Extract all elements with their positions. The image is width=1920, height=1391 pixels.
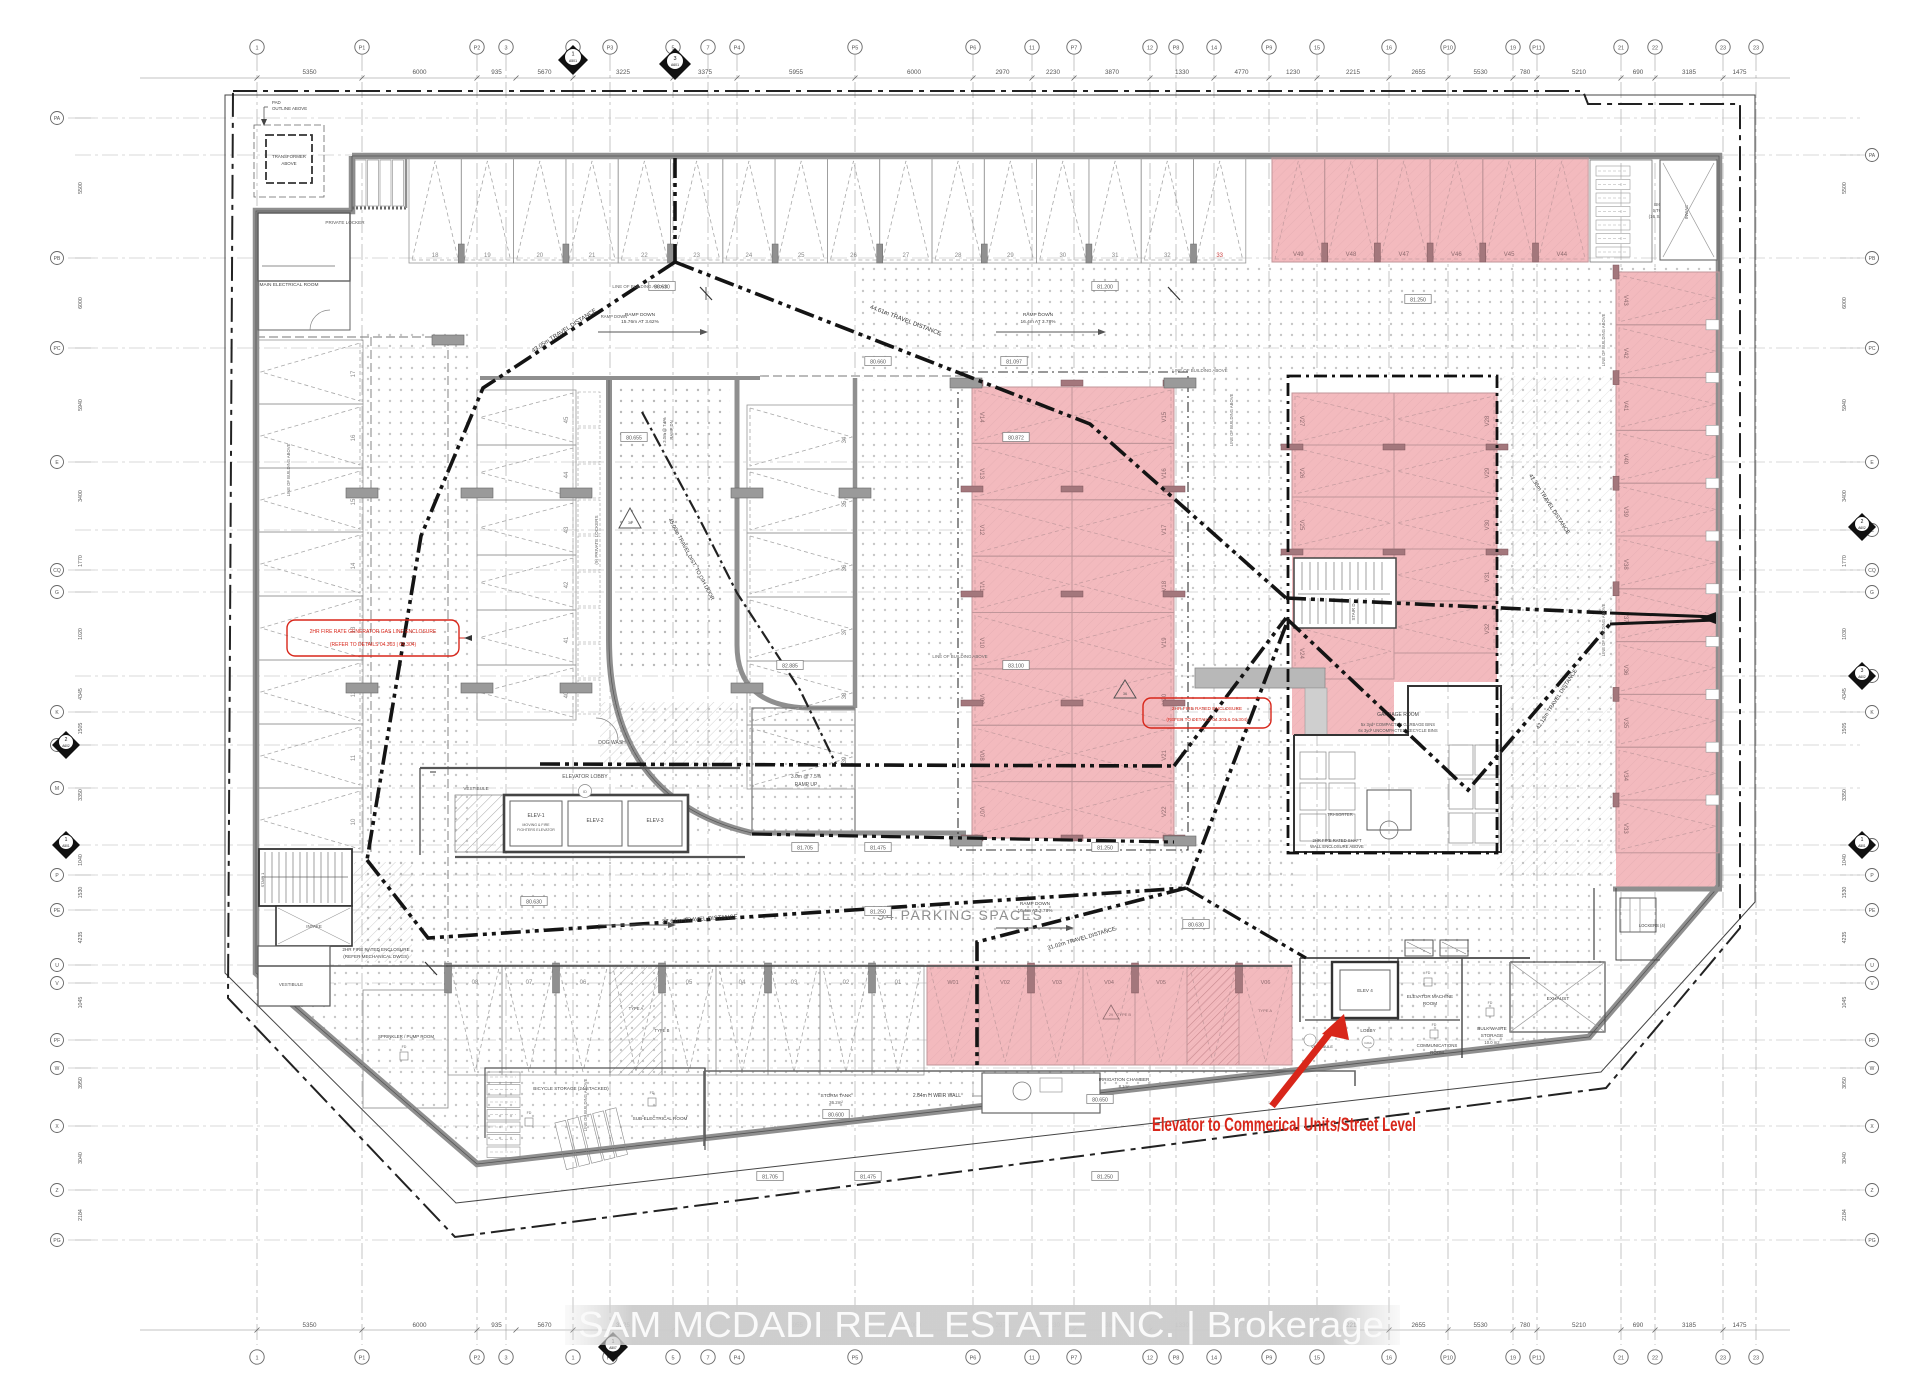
svg-text:P11: P11 [1532,46,1541,52]
svg-text:1505: 1505 [78,723,84,735]
svg-text:V33: V33 [1622,823,1628,834]
svg-text:V26: V26 [1298,468,1304,479]
svg-text:3040: 3040 [78,1152,84,1164]
svg-text:FD: FD [1488,1001,1493,1005]
svg-text:81.475: 81.475 [870,846,886,852]
svg-text:690: 690 [1633,1322,1644,1329]
svg-text:V03: V03 [1052,980,1062,986]
svg-text:21: 21 [589,253,596,259]
svg-text:V28: V28 [1485,415,1491,426]
svg-text:3400: 3400 [78,490,84,502]
svg-text:PF: PF [54,1038,60,1044]
svg-text:81.250: 81.250 [1097,1175,1113,1181]
svg-text:80.630: 80.630 [526,900,542,906]
svg-text:V16: V16 [1162,468,1168,479]
svg-text:TYPE B: TYPE B [655,1028,670,1033]
svg-text:15: 15 [351,498,357,505]
svg-text:22: 22 [1652,1356,1658,1362]
svg-text:81.705: 81.705 [762,1175,778,1181]
svg-text:A602: A602 [1858,675,1866,679]
svg-text:FD: FD [1426,971,1431,975]
svg-text:2HR FIRE RATED ENCLOSURE: 2HR FIRE RATED ENCLOSURE [1172,706,1242,712]
svg-text:3375: 3375 [698,69,713,76]
svg-text:PA: PA [54,116,61,122]
svg-text:33: 33 [1216,253,1223,259]
svg-text:7: 7 [706,46,709,52]
svg-text:43: 43 [564,526,570,533]
svg-text:36: 36 [1123,692,1127,696]
svg-text:19: 19 [1510,1356,1516,1362]
svg-text:PE: PE [1869,908,1876,914]
svg-text:28: 28 [955,253,962,259]
svg-text:08: 08 [472,980,479,986]
svg-text:ELEVATOR LOBBY: ELEVATOR LOBBY [562,774,608,780]
svg-text:3: 3 [504,46,507,52]
svg-text:LINE OF BUILDING ABOVE: LINE OF BUILDING ABOVE [932,654,987,659]
svg-text:A501: A501 [62,844,70,848]
svg-text:5940: 5940 [1842,399,1848,411]
svg-text:1: 1 [255,1356,258,1362]
svg-text:10.0 m2: 10.0 m2 [1484,1040,1500,1045]
svg-text:ELEV-3: ELEV-3 [647,818,664,824]
svg-text:LINE OF BUILDING ABOVE: LINE OF BUILDING ABOVE [286,443,291,496]
svg-text:3.0m @ 7.5%: 3.0m @ 7.5% [791,774,822,780]
svg-text:P8: P8 [1173,1356,1180,1362]
svg-text:V08: V08 [978,750,984,761]
svg-text:1: 1 [571,52,574,58]
svg-text:V43: V43 [1622,295,1628,306]
svg-text:2HR FIRE RATED SHAFT: 2HR FIRE RATED SHAFT [1312,838,1361,843]
svg-text:V36: V36 [1622,665,1628,676]
svg-text:ABOVE: ABOVE [281,161,296,166]
svg-text:05: 05 [686,980,693,986]
svg-text:V17: V17 [1162,524,1168,535]
svg-text:935: 935 [491,1322,502,1329]
svg-text:V32: V32 [1485,623,1491,634]
svg-text:RAMP DOWN: RAMP DOWN [625,312,656,318]
svg-text:80.600: 80.600 [828,1113,844,1119]
svg-text:6000: 6000 [412,1322,427,1329]
svg-text:2184: 2184 [1842,1209,1848,1221]
svg-text:1: 1 [571,1356,574,1362]
svg-text:RAMP DOWN: RAMP DOWN [601,314,627,319]
svg-text:1505: 1505 [1842,723,1848,735]
svg-text:3400: 3400 [1842,490,1848,502]
svg-text:V18: V18 [1162,580,1168,591]
svg-text:37: 37 [842,628,848,635]
svg-text:A501: A501 [569,59,577,63]
svg-text:23: 23 [1753,46,1759,52]
svg-text:U: U [55,963,59,969]
svg-text:4235: 4235 [1842,932,1848,944]
svg-text:8.1m²: 8.1m² [1119,1084,1130,1089]
svg-text:V27: V27 [1298,416,1304,427]
svg-text:W01: W01 [947,980,958,986]
svg-text:6000: 6000 [907,69,922,76]
svg-text:04: 04 [739,980,746,986]
svg-text:81.475: 81.475 [860,1175,876,1181]
svg-text:C2bA: C2bA [1364,1041,1372,1045]
svg-text:MOVING & FIRE: MOVING & FIRE [522,823,550,827]
svg-text:19: 19 [484,253,491,259]
svg-text:5530: 5530 [1473,1322,1488,1329]
svg-text:PG: PG [1868,1238,1875,1244]
svg-text:P6: P6 [970,46,977,52]
svg-text:V12: V12 [978,525,984,536]
svg-text:V25: V25 [1298,520,1304,531]
svg-text:1475: 1475 [1732,69,1747,76]
svg-text:A507: A507 [609,1346,617,1350]
svg-text:P1: P1 [359,46,366,52]
svg-text:06: 06 [580,980,587,986]
svg-text:3350: 3350 [78,789,84,801]
svg-text:ID: ID [583,790,587,794]
svg-text:LINE OF BUILDING ABOVE: LINE OF BUILDING ABOVE [1601,313,1606,366]
svg-text:23: 23 [1720,1356,1726,1362]
svg-text:14: 14 [351,562,357,569]
svg-text:P9: P9 [1266,1356,1273,1362]
svg-text:1: 1 [1861,837,1864,843]
svg-text:3185: 3185 [1682,69,1697,76]
svg-text:31: 31 [1112,253,1119,259]
svg-text:W: W [55,1066,60,1072]
svg-text:1040: 1040 [1842,854,1848,866]
svg-text:V24: V24 [1298,648,1304,659]
svg-text:V38: V38 [1622,559,1628,570]
svg-text:EXHAUST: EXHAUST [1547,996,1570,1002]
svg-text:1: 1 [255,46,258,52]
svg-text:V42: V42 [1622,348,1628,359]
svg-text:5670: 5670 [537,69,552,76]
svg-text:80.872: 80.872 [1008,436,1024,442]
svg-text:34: 34 [842,436,848,443]
svg-text:03: 03 [791,980,798,986]
svg-text:FD: FD [402,1045,407,1049]
svg-text:1040: 1040 [78,854,84,866]
svg-text:V19: V19 [1162,637,1168,648]
svg-text:21: 21 [1618,46,1624,52]
svg-text:3: 3 [673,56,676,62]
svg-text:1230: 1230 [1286,69,1301,76]
svg-text:V35: V35 [1622,717,1628,728]
svg-text:4345: 4345 [78,688,84,700]
svg-text:32: 32 [1164,253,1171,259]
svg-text:19: 19 [1510,46,1516,52]
svg-text:80.655: 80.655 [626,436,642,442]
svg-text:29: 29 [1109,1013,1113,1017]
svg-text:1: 1 [65,837,68,843]
svg-text:(9) PRIVATE LOCKERS: (9) PRIVATE LOCKERS [594,515,599,564]
svg-text:V46: V46 [1451,252,1462,258]
svg-text:P8: P8 [1173,46,1180,52]
svg-text:V21: V21 [1162,749,1168,760]
svg-text:LINE OF BUILDING ABOVE: LINE OF BUILDING ABOVE [612,284,667,289]
svg-text:690: 690 [1633,69,1644,76]
svg-text:5530: 5530 [1473,69,1488,76]
svg-text:V06: V06 [1261,980,1271,986]
svg-text:5350: 5350 [302,1322,317,1329]
svg-text:94 PARKING SPACES: 94 PARKING SPACES [877,907,1044,923]
svg-text:A501: A501 [1858,844,1866,848]
svg-text:1530: 1530 [78,887,84,899]
svg-text:7: 7 [706,1356,709,1362]
svg-text:83.100: 83.100 [1008,664,1024,670]
svg-text:ELEV-1: ELEV-1 [528,813,545,819]
svg-text:PAD: PAD [272,100,281,105]
svg-text:STAIR D: STAIR D [1351,604,1356,621]
svg-text:36.2m²: 36.2m² [829,1100,843,1105]
svg-text:P6: P6 [970,1356,977,1362]
svg-text:5955: 5955 [789,69,804,76]
svg-text:10: 10 [351,818,357,825]
svg-text:2: 2 [1861,519,1864,525]
svg-text:15: 15 [1314,1356,1320,1362]
svg-text:5350: 5350 [302,69,317,76]
svg-text:15: 15 [1314,46,1320,52]
svg-text:LOCKERS (4): LOCKERS (4) [1639,923,1666,928]
svg-text:P9: P9 [1266,46,1273,52]
svg-text:V40: V40 [1622,453,1628,464]
svg-text:ELEV 4: ELEV 4 [1357,988,1373,993]
svg-text:42: 42 [564,581,570,588]
svg-text:V02: V02 [1000,980,1010,986]
svg-text:STORAGE: STORAGE [1481,1033,1503,1038]
svg-text:3950: 3950 [78,1077,84,1089]
svg-text:TYPE A: TYPE A [1258,1008,1272,1013]
svg-text:V13: V13 [978,468,984,479]
svg-text:25: 25 [798,253,805,259]
svg-text:U: U [1870,963,1874,969]
svg-text:80.630: 80.630 [1188,923,1204,929]
svg-text:3350: 3350 [1842,789,1848,801]
svg-text:(REFER MECHANICAL DWGS): (REFER MECHANICAL DWGS) [343,954,409,959]
svg-text:11: 11 [351,754,357,761]
svg-text:P1: P1 [359,1356,366,1362]
svg-text:V45: V45 [1504,252,1515,258]
svg-text:MAIN ELECTRICAL ROOM: MAIN ELECTRICAL ROOM [260,282,319,288]
svg-text:P5: P5 [852,46,859,52]
svg-text:16: 16 [1386,46,1392,52]
svg-text:2HR FIRE RATED ENCLOSURE: 2HR FIRE RATED ENCLOSURE [342,947,409,952]
svg-text:P10: P10 [1443,1356,1453,1362]
svg-text:2655: 2655 [1411,1322,1426,1329]
svg-text:45: 45 [564,416,570,423]
svg-text:1770: 1770 [78,555,84,567]
svg-text:780: 780 [1520,1322,1531,1329]
svg-text:V22: V22 [1162,806,1168,817]
svg-text:V14: V14 [978,412,984,423]
svg-text:6000: 6000 [78,297,84,309]
svg-text:5: 5 [671,1356,674,1362]
svg-text:3870: 3870 [1105,69,1120,76]
svg-text:P2: P2 [474,46,481,52]
svg-text:V47: V47 [1398,252,1409,258]
svg-text:07: 07 [526,980,533,986]
svg-text:ROOM: ROOM [1430,1050,1444,1055]
svg-text:LINE OF BUILDING ABOVE: LINE OF BUILDING ABOVE [1172,368,1227,373]
svg-text:24: 24 [746,253,753,259]
svg-text:23: 23 [1753,1356,1759,1362]
svg-text:81.097: 81.097 [1006,360,1022,366]
svg-text:V30: V30 [1485,519,1491,530]
svg-text:5210: 5210 [1572,69,1587,76]
svg-text:2: 2 [65,737,68,743]
svg-text:TRANSFORMER: TRANSFORMER [272,154,306,159]
svg-text:PF: PF [1869,1038,1875,1044]
svg-text:23: 23 [693,253,700,259]
svg-text:780: 780 [1520,69,1531,76]
svg-text:RAMP UP: RAMP UP [795,782,818,788]
svg-text:15.76m AT 3.62%: 15.76m AT 3.62% [621,319,659,325]
svg-text:5670: 5670 [537,1322,552,1329]
svg-text:V04: V04 [1104,980,1114,986]
svg-text:PA: PA [1869,153,1876,159]
svg-text:41: 41 [564,636,570,643]
svg-text:80.660: 80.660 [870,360,886,366]
svg-text:Z: Z [55,1188,58,1194]
svg-text:3050: 3050 [1842,1077,1848,1089]
svg-text:3: 3 [504,1356,507,1362]
svg-text:5500: 5500 [78,182,84,194]
svg-text:P7: P7 [1071,1356,1078,1362]
svg-text:81.250: 81.250 [1097,846,1113,852]
svg-text:81.200: 81.200 [1097,285,1113,291]
svg-text:5500: 5500 [1842,182,1848,194]
svg-text:STORM TANK: STORM TANK [821,1093,853,1099]
svg-text:81.250: 81.250 [1410,298,1426,304]
svg-text:V44: V44 [1556,252,1567,258]
svg-text:22: 22 [1652,46,1658,52]
svg-text:1020: 1020 [78,628,84,640]
svg-text:(REFER TO DETAILS 04.303 | 04.: (REFER TO DETAILS 04.303 | 04.304) [330,642,417,648]
svg-text:V11: V11 [978,581,984,592]
svg-text:3040: 3040 [1842,1152,1848,1164]
svg-text:V39: V39 [1622,506,1628,517]
svg-text:G: G [55,590,59,596]
svg-text:35: 35 [842,500,848,507]
svg-text:P5: P5 [852,1356,859,1362]
svg-text:02: 02 [843,980,850,986]
svg-text:BICYCLE STORAGE (24 STACKED): BICYCLE STORAGE (24 STACKED) [533,1086,609,1091]
svg-text:1045: 1045 [1842,997,1848,1009]
svg-text:V10: V10 [978,637,984,648]
svg-text:20: 20 [536,253,543,259]
svg-text:INWAC: INWAC [1684,205,1689,219]
svg-text:36: 36 [628,521,632,525]
svg-text:FD: FD [527,1111,532,1115]
svg-text:30: 30 [1059,253,1066,259]
svg-text:FD: FD [650,1091,655,1095]
svg-text:14: 14 [1211,46,1217,52]
svg-text:P4: P4 [734,1356,741,1362]
svg-text:V07: V07 [978,806,984,817]
svg-text:ROOM: ROOM [1423,1001,1437,1006]
svg-text:OUTLINE ABOVE: OUTLINE ABOVE [272,106,307,111]
svg-text:P4: P4 [734,46,741,52]
svg-text:P11: P11 [1532,1356,1541,1362]
svg-text:27: 27 [903,253,910,259]
svg-text:BULK WASTE: BULK WASTE [1477,1026,1506,1031]
svg-text:2184: 2184 [78,1209,84,1221]
svg-text:RAMP DN: RAMP DN [669,420,674,439]
svg-text:16: 16 [351,434,357,441]
svg-text:4770: 4770 [1234,69,1249,76]
svg-text:81.250: 81.250 [870,910,886,916]
svg-text:38: 38 [842,692,848,699]
svg-text:V48: V48 [1346,252,1357,258]
svg-text:18: 18 [432,253,439,259]
svg-text:CQ: CQ [53,568,61,574]
svg-text:W: W [1870,1066,1875,1072]
svg-text:1045: 1045 [78,997,84,1009]
svg-text:4235: 4235 [78,932,84,944]
svg-text:1530: 1530 [1842,887,1848,899]
svg-text:6000: 6000 [1842,297,1848,309]
svg-text:11: 11 [1029,46,1035,52]
svg-text:17: 17 [351,370,357,377]
svg-text:44: 44 [564,471,570,478]
svg-text:1030: 1030 [1842,628,1848,640]
svg-text:Z: Z [1870,1188,1873,1194]
svg-text:WALL ENCLOSURE ABOVE: WALL ENCLOSURE ABOVE [1310,844,1364,849]
svg-text:P3: P3 [607,46,614,52]
svg-text:RAMP DOWN: RAMP DOWN [1023,312,1054,318]
svg-text:INTAKE: INTAKE [306,924,322,929]
svg-text:81.705: 81.705 [797,846,813,852]
svg-text:COMMUNICATIONS: COMMUNICATIONS [1417,1043,1458,1048]
svg-text:LINE OF BUILDING ABOVE: LINE OF BUILDING ABOVE [1601,603,1606,656]
svg-text:16.4m AT 3.78%: 16.4m AT 3.78% [1020,319,1056,325]
svg-text:IRRIGATION CHAMBER: IRRIGATION CHAMBER [1099,1077,1150,1082]
svg-text:3: 3 [1861,668,1864,674]
svg-text:(REFER TO DETAILS 04.303 & 04.: (REFER TO DETAILS 04.303 & 04.304) [1166,717,1248,722]
svg-text:2.84m H WEIR WALL: 2.84m H WEIR WALL [913,1093,961,1099]
svg-text:A602: A602 [62,744,70,748]
svg-text:LINE OF BUILDING ABOVE: LINE OF BUILDING ABOVE [1229,393,1234,446]
svg-text:VESTIBULE: VESTIBULE [279,982,303,987]
svg-text:SUB-ELECTRICAL ROOM: SUB-ELECTRICAL ROOM [633,1116,688,1121]
svg-text:11: 11 [1029,1356,1035,1362]
svg-text:PG: PG [53,1238,60,1244]
svg-text:1770: 1770 [1842,555,1848,567]
svg-text:ELEV-2: ELEV-2 [587,818,604,824]
svg-text:22: 22 [641,253,648,259]
svg-text:TYPE B: TYPE B [1117,1012,1132,1017]
svg-text:80.650: 80.650 [1092,1098,1108,1104]
svg-text:3.0m @ 7.5%: 3.0m @ 7.5% [662,417,667,443]
svg-text:935: 935 [491,69,502,76]
svg-text:3225: 3225 [616,69,631,76]
svg-text:SPRINKLER / PUMP ROOM: SPRINKLER / PUMP ROOM [378,1034,434,1039]
svg-text:PE: PE [54,908,61,914]
svg-text:G: G [1870,590,1874,596]
svg-text:LOBBY: LOBBY [1360,1028,1375,1033]
svg-text:FD: FD [1432,1023,1437,1027]
svg-text:PRIVATE LOCKER: PRIVATE LOCKER [325,220,365,225]
svg-text:12: 12 [1147,1356,1153,1362]
svg-text:82.885: 82.885 [782,664,798,670]
svg-text:29: 29 [1007,253,1014,259]
svg-text:2655: 2655 [1411,69,1426,76]
svg-text:V05: V05 [1156,980,1166,986]
svg-text:Elevator to Commerical Units/S: Elevator to Commerical Units/Street Leve… [1152,1114,1416,1136]
svg-text:FIGHTERS ELEVATOR: FIGHTERS ELEVATOR [517,828,555,832]
svg-text:01: 01 [895,980,902,986]
svg-text:12: 12 [1147,46,1153,52]
svg-text:VESTIBULE: VESTIBULE [463,786,488,791]
svg-text:CQ: CQ [1868,568,1876,574]
svg-text:2230: 2230 [1046,69,1061,76]
